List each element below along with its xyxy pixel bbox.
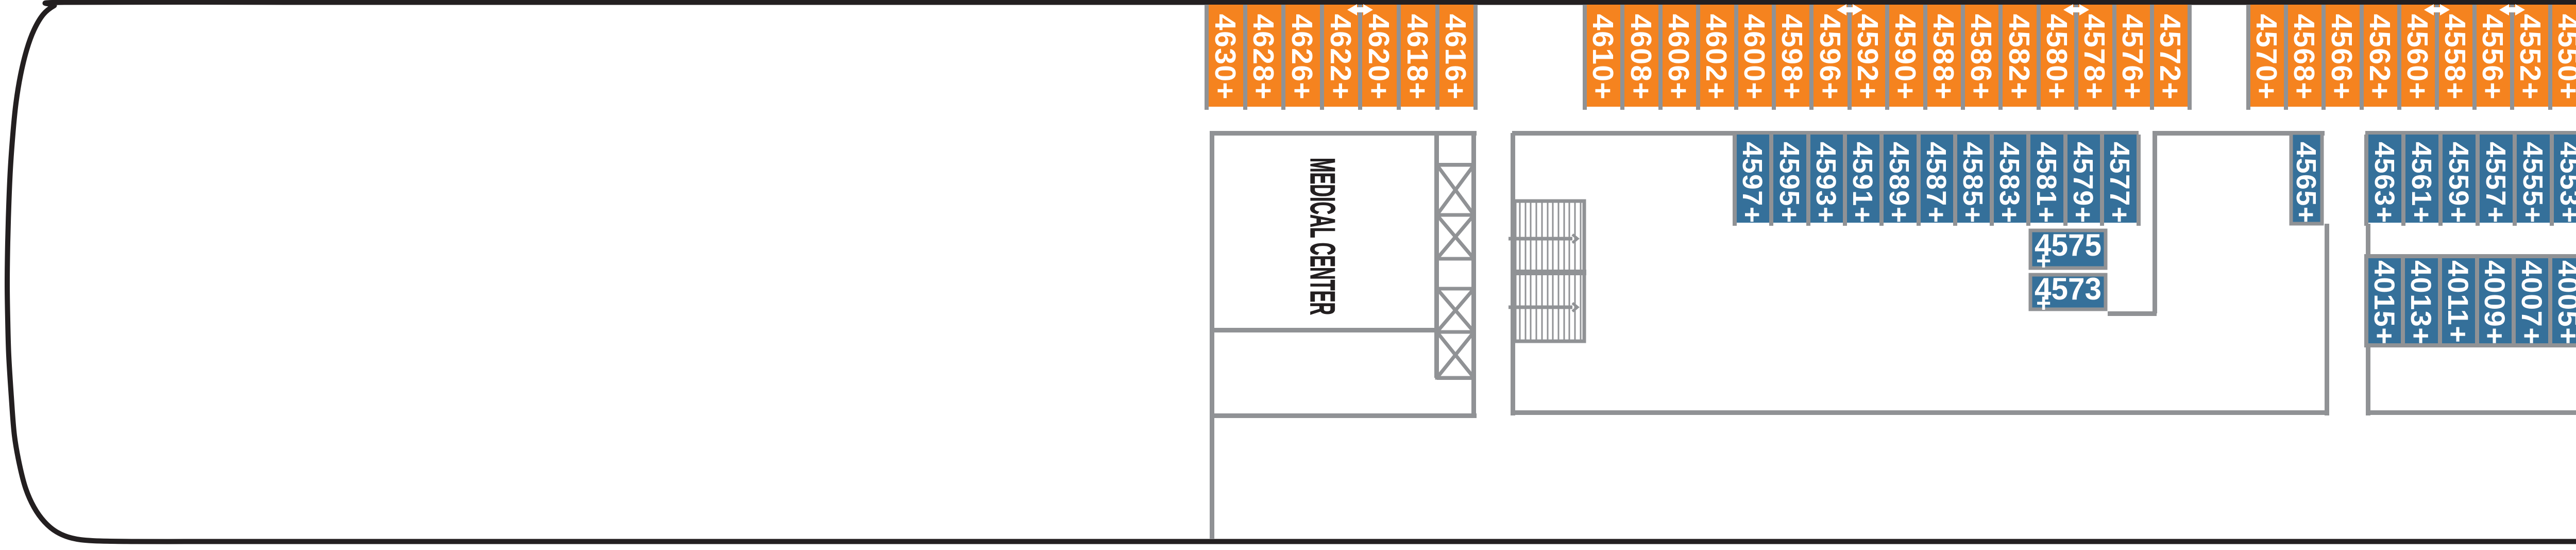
svg-text:4588+: 4588+ bbox=[1927, 14, 1960, 100]
svg-text:4582+: 4582+ bbox=[2003, 14, 2036, 100]
svg-text:4555+: 4555+ bbox=[2517, 142, 2548, 224]
svg-text:4616+: 4616+ bbox=[1439, 14, 1472, 100]
svg-text:4586+: 4586+ bbox=[1964, 14, 1997, 100]
svg-text:4572+: 4572+ bbox=[2154, 14, 2187, 100]
svg-text:4009+: 4009+ bbox=[2479, 260, 2511, 345]
svg-text:4595+: 4595+ bbox=[1774, 142, 1805, 224]
svg-text:4570+: 4570+ bbox=[2250, 14, 2283, 100]
svg-text:4011+: 4011+ bbox=[2442, 260, 2475, 343]
svg-text:4608+: 4608+ bbox=[1624, 14, 1657, 100]
svg-text:4583+: 4583+ bbox=[1994, 142, 2025, 224]
svg-text:4585+: 4585+ bbox=[1957, 142, 1988, 224]
svg-text:4590+: 4590+ bbox=[1889, 14, 1922, 100]
svg-text:4600+: 4600+ bbox=[1738, 14, 1771, 100]
svg-text:4602+: 4602+ bbox=[1700, 14, 1733, 100]
svg-text:MEDICAL CENTER: MEDICAL CENTER bbox=[1303, 158, 1342, 315]
svg-text:4628+: 4628+ bbox=[1247, 14, 1280, 100]
svg-text:4596+: 4596+ bbox=[1814, 14, 1846, 100]
svg-text:4013+: 4013+ bbox=[2405, 260, 2437, 345]
svg-text:4626+: 4626+ bbox=[1285, 14, 1318, 100]
svg-text:4581+: 4581+ bbox=[2031, 142, 2062, 224]
svg-text:4576+: 4576+ bbox=[2116, 14, 2149, 100]
svg-text:4552+: 4552+ bbox=[2514, 14, 2547, 100]
svg-text:4597+: 4597+ bbox=[1737, 142, 1768, 224]
svg-text:4558+: 4558+ bbox=[2438, 14, 2471, 100]
svg-text:4560+: 4560+ bbox=[2401, 14, 2434, 100]
svg-text:4587+: 4587+ bbox=[1921, 142, 1952, 224]
svg-text:4566+: 4566+ bbox=[2325, 14, 2358, 100]
svg-text:4591+: 4591+ bbox=[1847, 142, 1878, 224]
svg-text:4592+: 4592+ bbox=[1851, 14, 1884, 100]
svg-text:4598+: 4598+ bbox=[1775, 14, 1808, 100]
svg-text:4557+: 4557+ bbox=[2480, 142, 2511, 224]
svg-text:4015+: 4015+ bbox=[2368, 260, 2401, 345]
svg-text:4630+: 4630+ bbox=[1209, 14, 1242, 100]
svg-text:4561+: 4561+ bbox=[2406, 142, 2437, 224]
svg-text:4589+: 4589+ bbox=[1884, 142, 1914, 224]
svg-text:4556+: 4556+ bbox=[2476, 14, 2509, 100]
svg-text:4580+: 4580+ bbox=[2040, 14, 2073, 100]
svg-text:4579+: 4579+ bbox=[2067, 142, 2098, 224]
svg-text:4563+: 4563+ bbox=[2369, 142, 2400, 224]
svg-text:4620+: 4620+ bbox=[1362, 14, 1395, 100]
svg-text:4562+: 4562+ bbox=[2363, 14, 2396, 100]
svg-text:4577+: 4577+ bbox=[2104, 142, 2135, 224]
svg-text:4550+: 4550+ bbox=[2552, 14, 2576, 100]
svg-text:4610+: 4610+ bbox=[1586, 14, 1619, 100]
svg-text:4568+: 4568+ bbox=[2287, 14, 2320, 100]
svg-text:+: + bbox=[2036, 289, 2051, 318]
svg-text:4565+: 4565+ bbox=[2291, 142, 2321, 224]
svg-text:4005+: 4005+ bbox=[2552, 260, 2576, 345]
svg-text:4593+: 4593+ bbox=[1810, 142, 1841, 224]
svg-text:4606+: 4606+ bbox=[1662, 14, 1695, 100]
svg-text:4618+: 4618+ bbox=[1401, 14, 1434, 100]
svg-text:4559+: 4559+ bbox=[2443, 142, 2474, 224]
svg-text:4007+: 4007+ bbox=[2516, 260, 2548, 345]
svg-text:4553+: 4553+ bbox=[2554, 142, 2576, 224]
svg-text:4578+: 4578+ bbox=[2078, 14, 2111, 100]
svg-text:4622+: 4622+ bbox=[1324, 14, 1357, 100]
svg-text:+: + bbox=[2036, 246, 2051, 275]
